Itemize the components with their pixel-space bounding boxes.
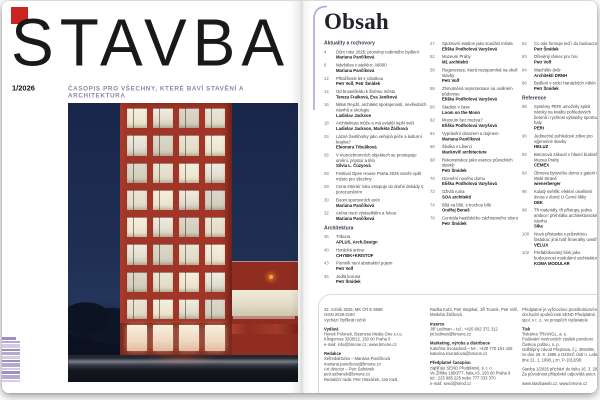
toc-entry-text: V monochromních objektech se prostupuje … [336, 152, 430, 168]
toc-entry-author: Mariana Pančíková [442, 136, 499, 141]
toc-entry: 94Obnova bytového domu s galerií na Malé… [522, 171, 597, 187]
toc-entry-text: Zhmotněná reprezentace na oválném půdory… [442, 86, 520, 102]
toc-entry-author: Petr Šmídek [442, 168, 520, 173]
toc-entry: 90Jedinečné pohledové zdivo pro výjimečn… [522, 133, 597, 149]
toc-entry-author: Petr Šmídek [534, 86, 596, 91]
toc-entry-text: Co nás formuje teď i do budoucnaPetr Šmí… [534, 41, 597, 52]
toc-entry-text: Regenerace, která nezapomíná na okolí st… [442, 67, 520, 83]
spine-stripe [2, 368, 20, 370]
toc-entry: 6Návštěva v ateliéru: A8000Mariana Pančí… [324, 63, 430, 74]
spine-stripe [2, 341, 20, 343]
toc-entry-author: Petr Šmídek [534, 46, 597, 51]
toc-entry-author: PERI [534, 126, 597, 131]
toc-entry: 66Školka v LiberciMackovič architecture [430, 144, 520, 155]
toc-entry: 43Pomník není abstraktní pojemPetr Volf [324, 261, 430, 272]
lobby-door [153, 325, 173, 351]
window-cell [179, 108, 199, 128]
toc-entry-title: Milan Rejchl, architekt spokojenosti, ne… [336, 102, 430, 113]
toc-entry-title: Nová přístavba s průsvitnou fasádou: jin… [534, 232, 597, 243]
toc-entry-text: Lázně Šestihorky jako veřejná péče a kul… [336, 134, 430, 150]
toc-page-number: 26 [324, 152, 336, 168]
toc-entry-author: APLUS, Arch.Design [336, 240, 378, 245]
window-cell [205, 244, 225, 264]
toc-entry-text: Cena Interiér roku vstupuje do druhé dek… [336, 184, 430, 195]
window-cell [205, 272, 225, 292]
toc-entry: 58Zhmotněná reprezentace na oválném půdo… [430, 86, 520, 102]
toc-entry: 96Kulatý světlík: efektní osvětlení dvor… [522, 189, 597, 205]
toc-page-number: 66 [430, 144, 442, 155]
window-cell [205, 299, 225, 319]
window-cell [127, 108, 147, 128]
window-cell [153, 135, 173, 155]
toc-page-number: 46 [324, 274, 336, 285]
imprint-line: spol. s r. o., ve prospěch vydavatele [522, 317, 597, 322]
toc-entry: 70Ocenění nového domuEliška Podholová Va… [430, 176, 520, 187]
imprint-group: www.stavbaweb.cz, www.bmone.cz [522, 381, 597, 386]
toc-entry-text: Bílá na bílé, s trochou bíléOndřej Beneš [442, 202, 491, 213]
toc-entry: 30Boom sportovních arénMariana Pančíková [324, 197, 430, 208]
toc-entry-text: Kulatý světlík: efektní osvětlení dvora … [534, 189, 597, 205]
window-cell [127, 190, 147, 210]
toc-entry-text: Jedlá korunaPetr Šmídek [336, 274, 361, 285]
window-cell [153, 108, 173, 128]
cover-photo [68, 103, 298, 382]
toc-entry-text: Systémy PERI umožnily splnit nároky na k… [534, 104, 597, 131]
toc-page-number: 18 [324, 121, 336, 132]
toc-entry-title: Regenerace, která nezapomíná na okolí st… [442, 67, 520, 78]
spine-stripe [2, 344, 20, 348]
toc-page-number: 88 [522, 104, 534, 131]
lobby-door [179, 325, 199, 351]
toc-entry-author: Sika [534, 224, 597, 229]
window-cell [179, 244, 199, 264]
window-cell [205, 217, 225, 237]
annex-building [226, 261, 298, 356]
toc-entry-author: VELUX [534, 242, 597, 247]
toc-entry: 56Regenerace, která nezapomíná na okolí … [430, 67, 520, 83]
toc-entry-text: Muzeum PrahyM1 architekti [442, 54, 471, 65]
window-cell [179, 299, 199, 319]
toc-entry-text: Pomník není abstraktní pojemPetr Volf [336, 261, 392, 272]
spine-stripe [2, 363, 20, 367]
toc-entry-text: Tři materiály, tři přístupy, jedna ambic… [534, 208, 597, 229]
toc-entry-text: Od brownfieldu k živému městuTereza Frai… [336, 89, 397, 100]
toc-entry: 88Systémy PERI umožnily splnit nároky na… [522, 104, 597, 131]
window-cell [127, 217, 147, 237]
toc-entry: 83Dřevěný rámec pro hruPetr Volf [522, 54, 597, 65]
imprint-group: 32. ročník 2025, MK ČR E 6688ISSN 2029-2… [324, 307, 428, 322]
imprint-group: VydáváHynek Polonek, Business Media One … [324, 326, 428, 347]
toc-page-number: 14 [324, 89, 336, 100]
magazine-title: STAVBA [11, 3, 290, 82]
imprint-group: TiskTiskárna TRIANGL, a. s.Podávání novi… [522, 326, 597, 362]
toc-entry-text: Wachtlův dvůrArchitekti DRNH [534, 67, 567, 78]
toc-entry-text: Přitažlivost let s robotkouPetr Volf, Pe… [336, 76, 383, 87]
toc-entry-title: Cena Interiér roku vstupuje do druhé dek… [336, 184, 430, 195]
window-cell [205, 135, 225, 155]
contents-page: Obsah Aktuality a rozhovory4Dům roku 202… [300, 1, 597, 393]
toc-entry: 62Muzeum bez muzea?Eliška Podholová Vary… [430, 118, 520, 129]
imprint-line: jiri.ledman@bmone.cz [430, 332, 522, 337]
window-cell [153, 272, 173, 292]
toc-page-number: 74 [430, 202, 442, 213]
toc-entry: 74Bílá na bílé, s trochou bíléOndřej Ben… [430, 202, 520, 213]
toc-entry-title: Prefabrikovaný blok jako budoucnost modu… [534, 250, 597, 261]
toc-entry-title: Obnova bytového domu s galerií na Malé S… [534, 171, 597, 182]
toc-entry: 36TribunaAPLUS, Arch.Design [324, 234, 430, 245]
toc-page-number: 32 [324, 211, 336, 222]
toc-page-number: 90 [522, 133, 534, 149]
spine-stripe [2, 349, 20, 351]
toc-page-number: 70 [430, 176, 442, 187]
toc-entry: 98Tři materiály, tři přístupy, jedna amb… [522, 208, 597, 229]
toc-entry-title: Systémy PERI umožnily splnit nároky na k… [534, 104, 597, 125]
toc-entry-author: Petr Volf [442, 78, 520, 83]
section-header: Architektura [324, 226, 430, 231]
toc-entry-author: HELUZ [534, 144, 597, 149]
toc-entry: 52Muzeum PrahyM1 architekti [430, 54, 520, 65]
annex-glazing [230, 290, 298, 316]
window-cell [127, 135, 147, 155]
toc-entry-text: Ocenění nového domuEliška Podholová Vary… [442, 176, 497, 187]
toc-entry-title: Festival Open House Praha 2026 otevře op… [336, 171, 430, 182]
toc-entry-author: Petr Šmídek [442, 221, 518, 226]
toc-entry-author: Silvia L. Čúzyová [336, 163, 430, 168]
toc-entry-author: wienerberger [534, 181, 597, 186]
toc-page-number: 98 [522, 208, 534, 229]
spine-stripe [2, 337, 16, 340]
imprint-line: www.stavbaweb.cz, www.bmone.cz [522, 381, 597, 386]
toc-page-number: 76 [430, 215, 442, 226]
toc-entry-author: Petr Šmídek [336, 279, 361, 284]
window-cell [179, 163, 199, 183]
toc-entry-author: Eliška Podholová Varyšová [442, 181, 497, 186]
toc-entry: 102Prefabrikovaný blok jako budoucnost m… [522, 250, 597, 266]
toc-entry: 29Cena Interiér roku vstupuje do druhé d… [324, 184, 430, 195]
imprint-line: Za původnost příspěvků odpovídá autor. [522, 372, 597, 377]
toc-entry-title: Boom sportovních arén [336, 197, 380, 202]
traffic-light-streaks [68, 358, 298, 370]
toc-page-number: 28 [324, 171, 336, 182]
toc-entry-title: Betonová zákoutí v hlavní budově Muzea P… [534, 152, 597, 163]
toc-entry-author: SOA architekti [442, 194, 471, 199]
imprint-group: Předplatné časopisuzajišťuje SEND Předpl… [430, 360, 522, 386]
toc-entry: 18Architektura může a má uvádět lepší sv… [324, 121, 430, 132]
window-cell [205, 163, 225, 183]
toc-entry-text: TribunaAPLUS, Arch.Design [336, 234, 378, 245]
annex-band [226, 324, 298, 334]
toc-entry: 84Wachtlův dvůrArchitekti DRNH [522, 67, 597, 78]
spine-barcode [2, 337, 20, 389]
window-cell [179, 190, 199, 210]
magazine-spread: STAVBA 1/2026 ČASOPIS PRO VŠECHNY, KTERÉ… [2, 1, 597, 393]
toc-entry-text: Dřevěný rámec pro hruPetr Volf [534, 54, 577, 65]
toc-entry-title: Jedinečné pohledové zdivo pro výjimečné … [534, 133, 597, 144]
toc-entry: 76Centrála hasičského záchranného sboruP… [430, 215, 520, 226]
window-cell [153, 190, 173, 210]
toc-entry: 92Betonová zákoutí v hlavní budově Muzea… [522, 152, 597, 168]
window-cell [127, 244, 147, 264]
toc-page-number: 64 [430, 131, 442, 142]
toc-entry-author: Ladislav Jackson [336, 113, 430, 118]
toc-entry-author: Ladislav Jackson, Markéta Žáčková [336, 126, 414, 131]
window-cell [205, 108, 225, 128]
toc-entry: 26V monochromních objektech se prostupuj… [324, 152, 430, 168]
toc-entry-text: Milan Rejchl, architekt spokojenosti, ne… [336, 102, 430, 118]
toc-entry-author: Mariana Pančíková [336, 203, 380, 208]
toc-entry: 100Nová přístavba s průsvitnou fasádou: … [522, 232, 597, 248]
toc-entry-text: Obnova bytového domu s galerií na Malé S… [534, 171, 597, 187]
spine-stripe [2, 371, 20, 374]
spine-stripe [2, 360, 20, 362]
toc-entry-author: Architekti DRNH [534, 73, 567, 78]
spine-stripe [2, 356, 20, 359]
spine-stripe [2, 375, 20, 379]
window-cell [127, 299, 147, 319]
toc-entry-author: Eleonora Trbušková [336, 145, 430, 150]
toc-page-number: 96 [522, 189, 534, 205]
spine-stripe [2, 352, 20, 355]
toc-entry-text: Festival Open House Praha 2026 otevře op… [336, 171, 430, 182]
toc-entry-text: Stadion v časeLoom on the Moon [442, 105, 480, 116]
toc-page-number: 102 [522, 250, 534, 266]
imprint-group: Předplatné je vyřizováno prostřednictvím… [522, 307, 597, 322]
lobby-door [205, 325, 225, 351]
toc-entry-text: Dům roku 2025: proměny rodinného bydlení… [336, 49, 419, 60]
toc-entry-title: Lázně Šestihorky jako veřejná péče a kul… [336, 134, 430, 145]
window-cell [153, 217, 173, 237]
toc-entry-text: Centrála hasičského záchranného sboruPet… [442, 215, 518, 226]
imprint-line: e-mail: info@bmone.cz, www.bmone.cz [324, 342, 428, 347]
street-lamp-light [269, 275, 273, 279]
toc-page-number: 100 [522, 232, 534, 248]
contents-column-2: 47Sportovní stadion jako součást městaEl… [430, 41, 520, 229]
imprint-line: Markéta Žáčková [430, 312, 522, 317]
toc-entry-title: Kulatý světlík: efektní osvětlení dvora … [534, 189, 597, 200]
toc-entry-title: Vyprávění obrazem a dojmem [442, 131, 499, 136]
toc-entry-author: Eliška Podholová Varyšová [442, 97, 520, 102]
imprint-group: Radka Kubí, Petr Stejskal, Jiří Tourek, … [430, 307, 522, 317]
toc-entry: 32Aréna mezi výstavištěm a řekouMariana … [324, 211, 430, 222]
toc-entry: 24Lázně Šestihorky jako veřejná péče a k… [324, 134, 430, 150]
toc-entry-text: Bydlení v srdci Hanáckých AthénPetr Šmíd… [534, 81, 596, 92]
contents-column-1: Aktuality a rozhovory4Dům roku 2025: pro… [324, 41, 430, 287]
toc-entry-text: Oživlá ruinaSOA architekti [442, 189, 471, 200]
tower-building [120, 103, 232, 355]
toc-entry-author: Loom on the Moon [442, 110, 480, 115]
toc-page-number: 82 [522, 41, 534, 52]
toc-entry-text: Jedinečné pohledové zdivo pro výjimečné … [534, 133, 597, 149]
toc-page-number: 52 [430, 54, 442, 65]
toc-entry: 40Horácká arénaCHYBIK+KRISTOF [324, 247, 430, 258]
toc-entry: 64Vyprávění obrazem a dojmemMariana Panč… [430, 131, 520, 142]
toc-page-number: 29 [324, 184, 336, 195]
toc-entry: 82Co nás formuje teď i do budoucnaPetr Š… [522, 41, 597, 52]
toc-entry: 12Přitažlivost let s robotkouPetr Volf, … [324, 76, 430, 87]
imprint-line: e-mail: send@send.cz [430, 381, 522, 386]
toc-page-number: 47 [430, 41, 442, 52]
toc-page-number: 6 [324, 63, 336, 74]
toc-page-number: 84 [522, 67, 534, 78]
toc-page-number: 62 [430, 118, 442, 129]
toc-entry: 60Stadion v časeLoom on the Moon [430, 105, 520, 116]
cover-page: STAVBA 1/2026 ČASOPIS PRO VŠECHNY, KTERÉ… [2, 1, 300, 393]
toc-page-number: 72 [430, 189, 442, 200]
toc-entry-text: Muzeum bez muzea?Eliška Podholová Varyšo… [442, 118, 497, 129]
imprint-column-3: Předplatné je vyřizováno prostřednictvím… [522, 307, 597, 390]
toc-page-number: 4 [324, 49, 336, 60]
toc-entry-author: Mariana Pančíková [336, 55, 419, 60]
toc-entry-author: DEK [534, 200, 597, 205]
imprint-line: Redakční rada: Petr Hlaváček, Jan Kasl, [324, 377, 428, 382]
toc-entry: 4Dům roku 2025: proměny rodinného bydlen… [324, 49, 430, 60]
toc-page-number: 60 [430, 105, 442, 116]
window-cell [179, 217, 199, 237]
imprint-line: katerina.svoradova@bmone.cz [430, 351, 522, 356]
imprint-column-2: Radka Kubí, Petr Stejskal, Jiří Tourek, … [430, 307, 522, 390]
toc-entry-text: Boom sportovních arénMariana Pančíková [336, 197, 380, 208]
toc-page-number: 56 [430, 67, 442, 83]
window-cell [205, 190, 225, 210]
toc-entry-author: CHYBIK+KRISTOF [336, 253, 373, 258]
toc-entry-author: Petr Volf [534, 60, 577, 65]
window-cell [153, 299, 173, 319]
toc-entry-title: Tři materiály, tři přístupy, jedna ambic… [534, 208, 597, 224]
toc-entry-author: Mackovič architecture [442, 149, 487, 154]
toc-entry-text: Horácká arénaCHYBIK+KRISTOF [336, 247, 373, 258]
toc-entry-author: KOMA MODULAR [534, 261, 597, 266]
imprint-group: RedakceŠéfredaktorka – Mariana Pančíková… [324, 351, 428, 382]
toc-entry-text: Aréna mezi výstavištěm a řekouMariana Pa… [336, 211, 396, 222]
toc-entry-text: Návštěva v ateliéru: A8000Mariana Pančík… [336, 63, 387, 74]
toc-entry: 16Milan Rejchl, architekt spokojenosti, … [324, 102, 430, 118]
toc-page-number: 92 [522, 152, 534, 168]
toc-entry-author: Petr Volf, Petr Šmídek [336, 81, 383, 86]
imprint-line: Vychází čtyřikrát ročně [324, 317, 428, 322]
toc-page-number: 12 [324, 76, 336, 87]
toc-entry-author: Eliška Podholová Varyšová [442, 46, 513, 51]
spine-stripe [2, 380, 20, 382]
window-grid [120, 103, 232, 323]
toc-page-number: 68 [430, 157, 442, 173]
toc-page-number: 24 [324, 134, 336, 150]
imprint-group: Stavba 1/2026 přichází do tisku 16. 3. 2… [522, 366, 597, 376]
window-cell [127, 163, 147, 183]
toc-entry: 28Festival Open House Praha 2026 otevře … [324, 171, 430, 182]
toc-entry-author: Mariana Pančíková [336, 68, 387, 73]
toc-page-number: 36 [324, 234, 336, 245]
window-cell [153, 163, 173, 183]
toc-page-number: 40 [324, 247, 336, 258]
toc-entry-text: Rekonstrukce jako esence původních stave… [442, 157, 520, 173]
toc-entry-author: M1 architekti [442, 60, 471, 65]
toc-entry-author: CEMEX [534, 163, 597, 168]
window-cell [179, 135, 199, 155]
imprint-group: Marketing, výroba a distribuceKateřina S… [430, 341, 522, 356]
section-header: Reference [522, 96, 597, 101]
cover-tagline: ČASOPIS PRO VŠECHNY, KTERÉ BAVÍ STAVĚNÍ … [68, 85, 303, 99]
toc-entry-author: Ondřej Beneš [442, 208, 491, 213]
toc-page-number: 94 [522, 171, 534, 187]
imprint-group: InzerceJiří Ledman – tel.: +420 602 372 … [430, 321, 522, 336]
toc-page-number: 30 [324, 197, 336, 208]
toc-page-number: 16 [324, 102, 336, 118]
toc-entry: 68Rekonstrukce jako esence původních sta… [430, 157, 520, 173]
toc-entry: 86Bydlení v srdci Hanáckých AthénPetr Šm… [522, 81, 597, 92]
window-cell [127, 272, 147, 292]
tree-silhouette [68, 300, 128, 356]
toc-entry-author: Mariana Pančíková [336, 216, 396, 221]
toc-entry-title: V monochromních objektech se prostupuje … [336, 152, 430, 163]
toc-entry-text: Školka v LiberciMackovič architecture [442, 144, 487, 155]
toc-entry: 14Od brownfieldu k živému městuTereza Fr… [324, 89, 430, 100]
toc-page-number: 86 [522, 81, 534, 92]
toc-entry-text: Architektura může a má uvádět lepší svět… [336, 121, 414, 132]
toc-entry: 72Oživlá ruinaSOA architekti [430, 189, 520, 200]
toc-entry-title: Zhmotněná reprezentace na oválném půdory… [442, 86, 520, 97]
toc-entry: 47Sportovní stadion jako součást městaEl… [430, 41, 520, 52]
section-header: Aktuality a rozhovory [324, 41, 430, 46]
contents-title: Obsah [324, 9, 389, 35]
toc-entry-title: Rekonstrukce jako esence původních stave… [442, 157, 520, 168]
toc-entry: 46Jedlá korunaPetr Šmídek [324, 274, 430, 285]
toc-page-number: 58 [430, 86, 442, 102]
toc-entry-text: Nová přístavba s průsvitnou fasádou: jin… [534, 232, 597, 248]
imprint-line: dne 21. 1. 1998, j.zn. P-1012/98. [522, 357, 597, 362]
toc-entry-text: Betonová zákoutí v hlavní budově Muzea P… [534, 152, 597, 168]
toc-page-number: 43 [324, 261, 336, 272]
toc-entry-author: Petr Volf [336, 266, 392, 271]
toc-entry-text: Prefabrikovaný blok jako budoucnost modu… [534, 250, 597, 266]
toc-page-number: 83 [522, 54, 534, 65]
contents-column-3: 82Co nás formuje teď i do budoucnaPetr Š… [522, 41, 597, 269]
imprint-column-1: 32. ročník 2025, MK ČR E 6688ISSN 2029-2… [324, 307, 428, 386]
toc-entry-author: Tereza Fraiková, Eva Jeníková [336, 94, 397, 99]
window-cell [179, 272, 199, 292]
window-cell [153, 244, 173, 264]
lobby-door [127, 325, 147, 351]
toc-entry-author: Eliška Podholová Varyšová [442, 123, 497, 128]
toc-entry-text: Vyprávění obrazem a dojmemMariana Pančík… [442, 131, 499, 142]
toc-entry-text: Sportovní stadion jako součást městaEliš… [442, 41, 513, 52]
